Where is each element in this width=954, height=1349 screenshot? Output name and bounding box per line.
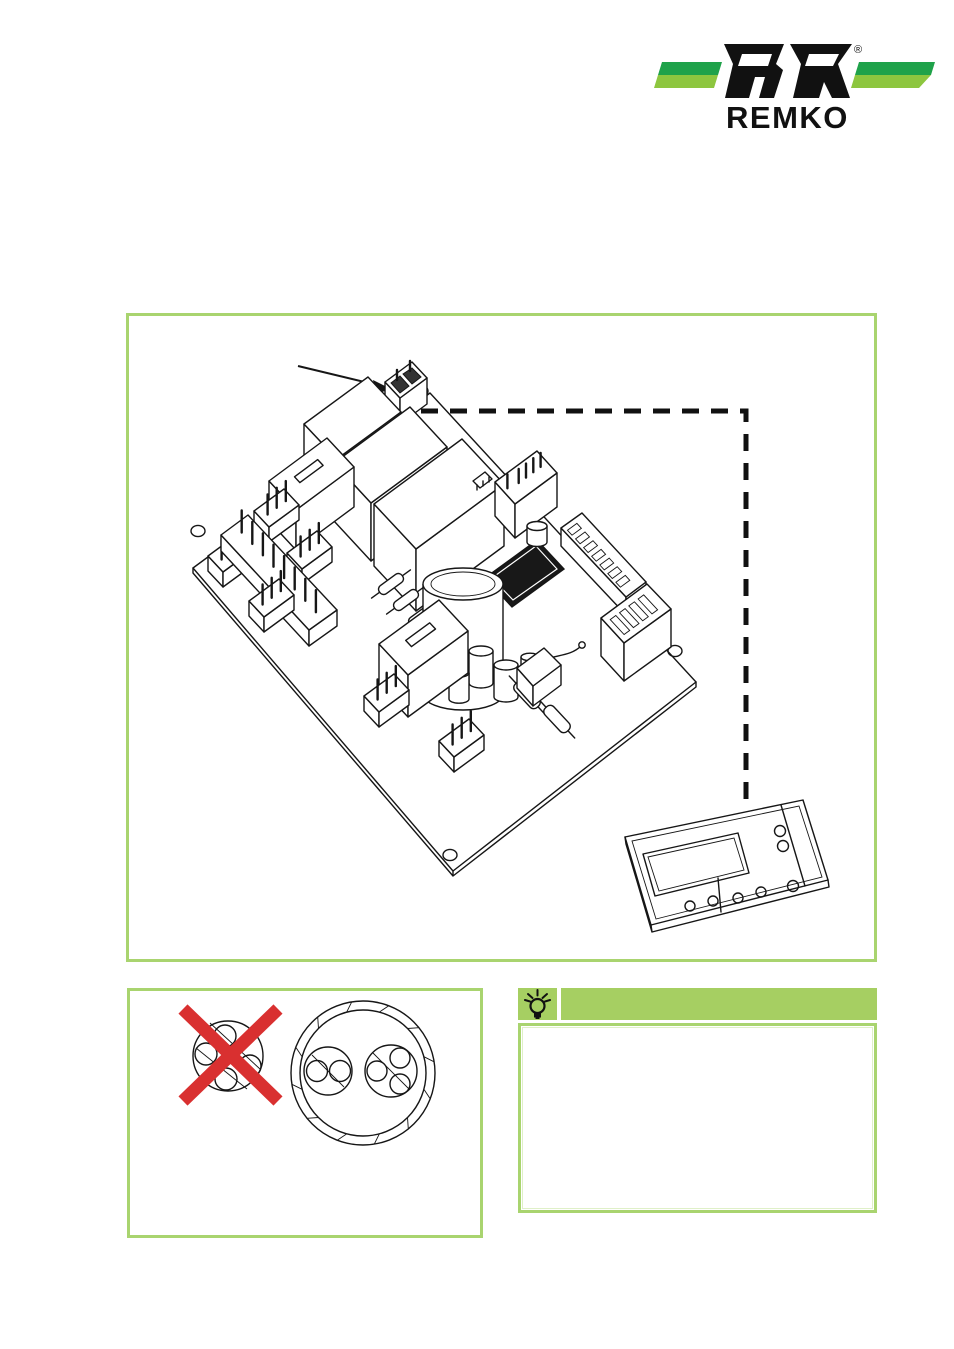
tip-icon-badge xyxy=(518,988,557,1020)
logo-stripe-left-light xyxy=(654,75,718,88)
small-capacitor xyxy=(527,522,547,547)
logo-letter-k xyxy=(790,44,852,98)
lightbulb-icon xyxy=(524,989,551,1019)
cable-cross-sections xyxy=(130,991,480,1235)
tip-header-bar xyxy=(561,988,877,1020)
correct-cable-diagram xyxy=(291,1001,435,1145)
tip-content-inner xyxy=(522,1027,873,1209)
logo-letter-r xyxy=(724,44,784,98)
logo-wordmark: REMKO xyxy=(726,100,849,135)
prohibition-cross-icon xyxy=(183,1009,278,1101)
board-hole xyxy=(191,525,205,536)
control-board-figure xyxy=(129,316,874,959)
logo-stripe-right-dark xyxy=(855,62,935,75)
remko-logo: ® REMKO xyxy=(648,40,940,136)
remko-logo-graphic: ® REMKO xyxy=(648,40,940,136)
logo-stripe-right-light xyxy=(851,75,931,88)
cable-figure-box xyxy=(127,988,483,1238)
logo-stripe-left-dark xyxy=(658,62,722,75)
wire-group-right xyxy=(365,1045,417,1097)
control-panel xyxy=(625,800,829,932)
tip-content-box xyxy=(518,1023,877,1213)
capacitor xyxy=(469,646,493,688)
main-figure-box xyxy=(126,313,877,962)
registered-mark: ® xyxy=(854,44,862,56)
document-page: ® REMKO xyxy=(0,0,954,1349)
wire-group-left xyxy=(304,1047,352,1095)
